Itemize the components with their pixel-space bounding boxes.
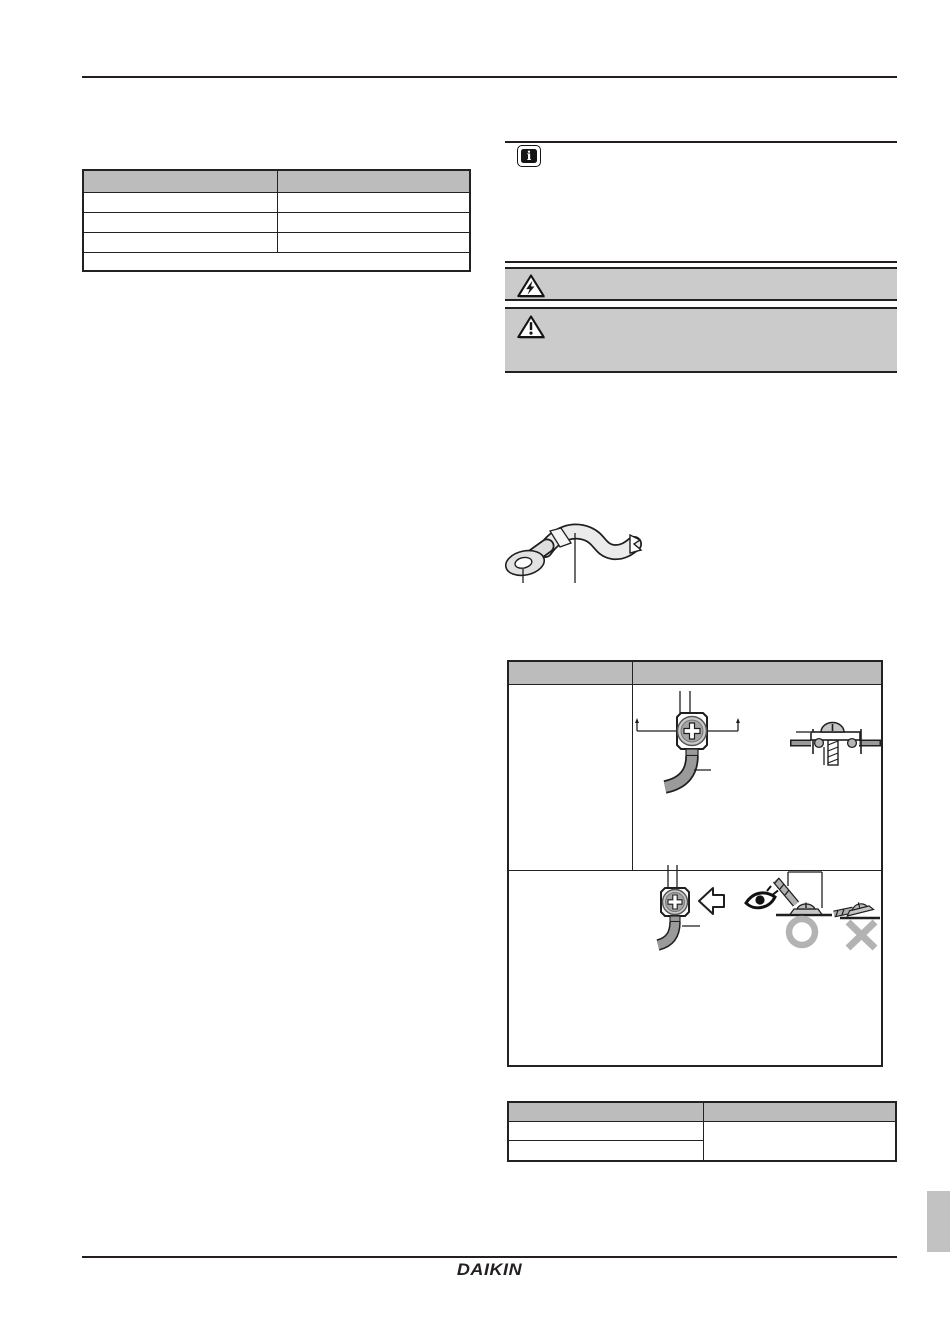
spec-table-cell [84, 213, 277, 232]
footer-rule [82, 1256, 897, 1258]
terminal-table-cell [509, 685, 632, 870]
spec-table-header-cell [84, 171, 277, 192]
warning-banner-general [505, 307, 897, 373]
terminal-orientation-figure [648, 864, 884, 956]
warning-banner-electric [505, 267, 897, 301]
torque-table [507, 1101, 897, 1162]
torque-table-cell [704, 1121, 895, 1160]
torque-table-header-cell [704, 1103, 895, 1121]
spec-table-header-cell [277, 171, 469, 192]
info-icon: i [517, 145, 541, 167]
terminal-table-header-cell [509, 662, 632, 684]
spec-table-cell [277, 233, 469, 252]
correct-orientation [775, 872, 832, 945]
crimp-terminal-wire-figure [503, 505, 643, 585]
page-edge-tab [927, 1191, 950, 1252]
cup-washer-side-figure [788, 700, 885, 770]
terminal-table-header-cell [632, 662, 881, 684]
terminal-screw-front-figure [634, 690, 746, 794]
spec-table-cell [277, 213, 469, 232]
left-block-arrow-icon [699, 888, 724, 914]
ok-mark-icon [789, 919, 815, 945]
top-rule [82, 76, 897, 78]
torque-table-cell [509, 1140, 703, 1160]
info-section-top-rule [505, 141, 897, 143]
electric-hazard-warning-icon [513, 272, 549, 300]
look-eye-icon [746, 886, 778, 908]
spec-table-cell [84, 233, 277, 252]
spec-table [82, 169, 471, 272]
torque-table-cell [509, 1121, 703, 1140]
daikin-logo: DAIKIN [58, 1260, 922, 1280]
info-icon-glyph: i [521, 149, 537, 164]
incorrect-orientation [834, 899, 880, 948]
manual-page: i [0, 0, 950, 1344]
info-section-bottom-rule [505, 261, 897, 263]
spec-table-cell [277, 193, 469, 212]
general-warning-icon [513, 313, 549, 341]
torque-table-header-cell [509, 1103, 703, 1121]
spec-table-cell [84, 193, 277, 212]
x-mark-icon [848, 922, 875, 948]
